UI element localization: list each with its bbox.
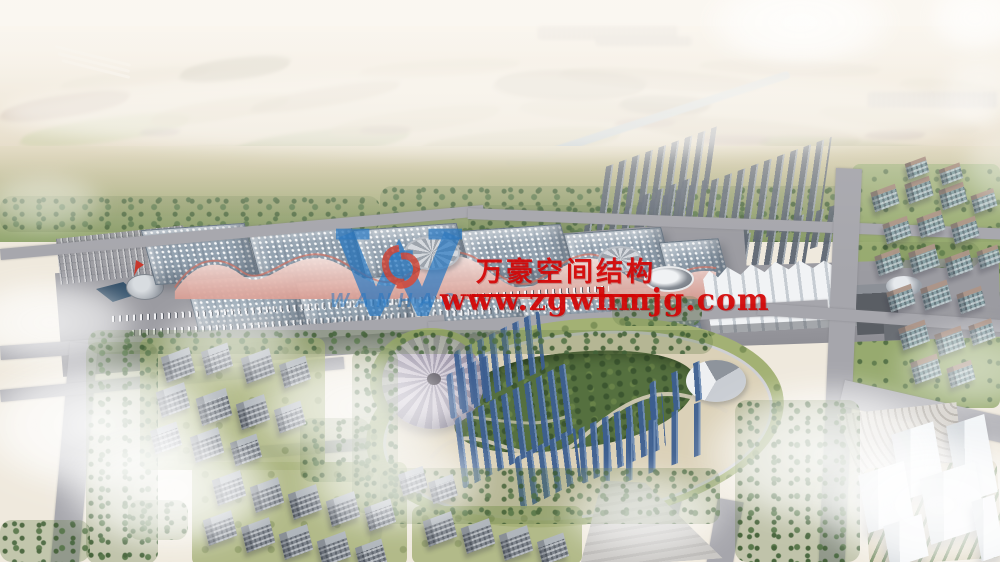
aerial-render: WANHAO 万豪空间结构 www.zgwhmjg.com [0,0,1000,562]
cloud [150,300,310,390]
cloud [55,425,285,555]
distant-skyline [596,36,692,46]
cloud [295,425,495,535]
fog-band [0,70,1000,155]
watermark-website: www.zgwhmjg.com [440,283,770,318]
